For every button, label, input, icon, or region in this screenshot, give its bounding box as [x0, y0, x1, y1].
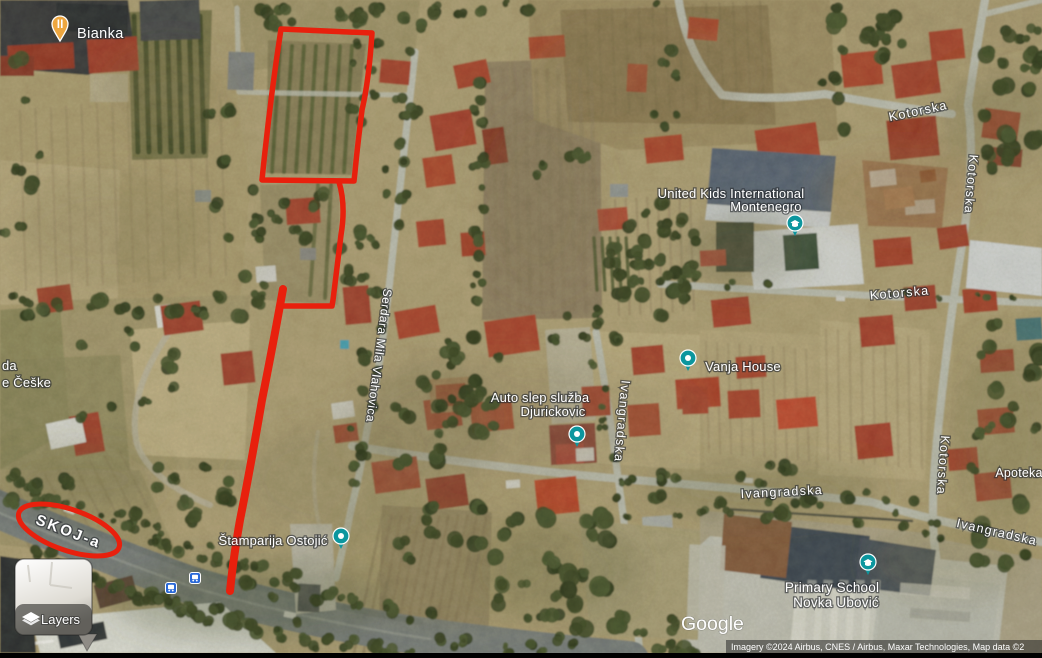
svg-text:Bianka: Bianka [77, 26, 124, 42]
svg-text:Apoteka: Apoteka [995, 466, 1042, 480]
svg-text:Layers: Layers [41, 612, 81, 627]
svg-text:Primary School: Primary School [785, 580, 879, 595]
svg-text:Vanja House: Vanja House [705, 359, 781, 374]
svg-text:Montenegro: Montenegro [730, 199, 801, 214]
svg-text:e Češke: e Češke [2, 375, 51, 390]
svg-text:Novka Ubović: Novka Ubović [793, 595, 879, 610]
svg-text:Imagery ©2024 Airbus, CNES / A: Imagery ©2024 Airbus, CNES / Airbus, Max… [731, 642, 1024, 652]
svg-text:Štamparija Ostojić: Štamparija Ostojić [218, 533, 327, 548]
svg-text:da: da [2, 358, 17, 373]
svg-text:Google: Google [681, 613, 744, 635]
svg-text:Auto slep služba: Auto slep služba [491, 390, 590, 405]
svg-text:Djurickovic: Djurickovic [520, 404, 585, 419]
